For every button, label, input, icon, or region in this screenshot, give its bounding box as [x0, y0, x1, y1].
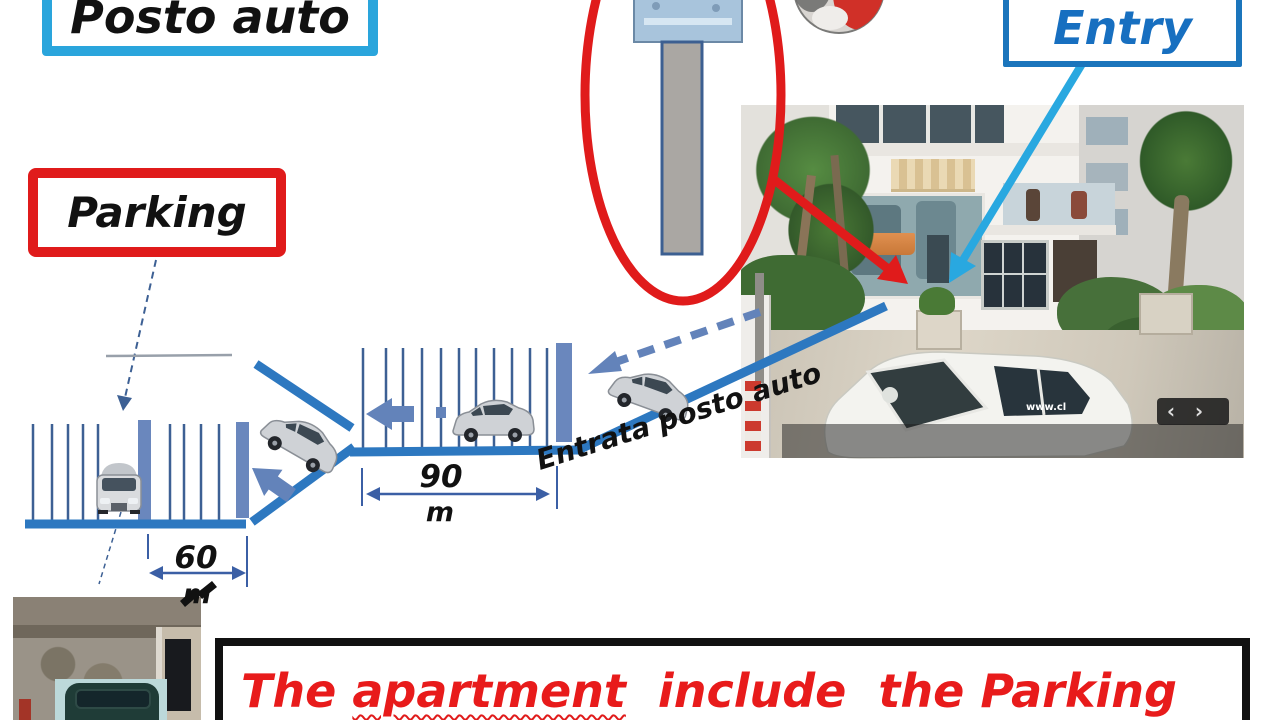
- bottom-banner: The apartment include the Parking: [215, 638, 1250, 720]
- parking-label: Parking: [67, 188, 246, 237]
- red-arrow-to-entrance: [772, 178, 908, 284]
- streetview-nav-bar: ‹ ›: [1157, 398, 1229, 425]
- dim-90-unit: m: [426, 497, 454, 528]
- dimension-90m: 90 m: [362, 459, 557, 528]
- banner-text-rest: include the Parking: [626, 664, 1177, 718]
- parking-leader-line: [99, 260, 232, 584]
- dimension-60m: 60 m: [148, 534, 247, 610]
- posto-auto-label: Posto auto: [70, 0, 350, 44]
- parking-sign-post: [634, 0, 742, 254]
- dim-90-value: 90: [419, 459, 462, 495]
- diagram-overlay: 60 m 90: [0, 0, 1280, 720]
- globe-ball-icon: [792, 0, 887, 33]
- car-watermark: www.cl: [1026, 402, 1066, 413]
- parked-car: [97, 463, 141, 514]
- entry-label-box: Entry: [1003, 0, 1242, 67]
- entry-label: Entry: [1053, 1, 1192, 55]
- streetview-shade-band: [782, 424, 1243, 458]
- cyan-arrow-to-entrance: [949, 64, 1082, 283]
- parking-label-box: Parking: [28, 168, 286, 257]
- parking-post: [236, 422, 249, 518]
- posto-auto-label-box: Posto auto: [42, 0, 378, 56]
- entrata-label: Entrata posto auto: [532, 356, 825, 477]
- dim-60-value: 60: [174, 540, 217, 576]
- slide-canvas: 60 m 90: [0, 0, 1280, 720]
- direction-arrow-left: [366, 398, 414, 430]
- arrow-dash: [436, 407, 446, 418]
- nav-next-button[interactable]: ›: [1195, 399, 1203, 423]
- left-diagonal-road: [243, 364, 354, 522]
- road-post: [556, 343, 572, 442]
- banner-text-lead: The: [241, 664, 352, 718]
- nav-prev-button[interactable]: ‹: [1167, 399, 1175, 423]
- banner-text-misspelled: apartment: [352, 664, 626, 718]
